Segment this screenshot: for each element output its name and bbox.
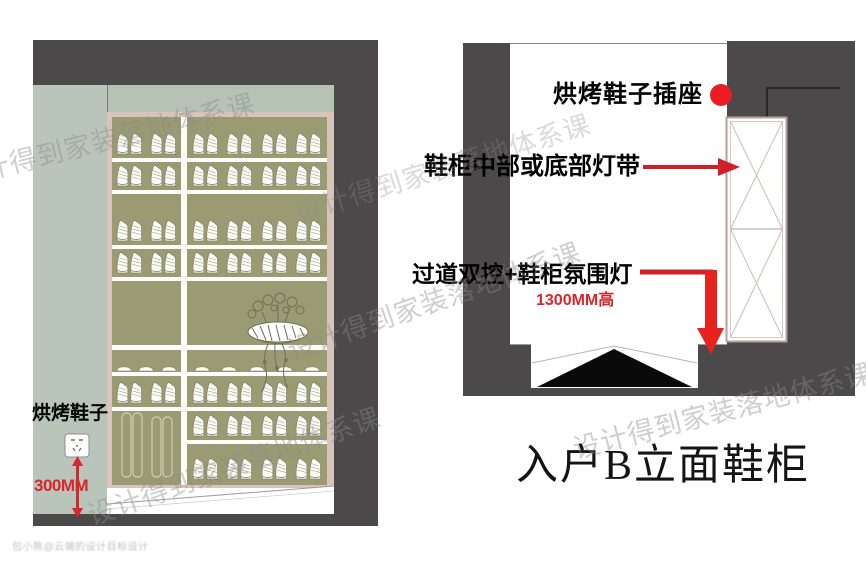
boots-icon	[294, 411, 323, 440]
boots-icon	[149, 248, 178, 277]
socket-annotation: 烘烤鞋子插座	[553, 82, 703, 108]
boots-icon	[294, 248, 323, 277]
boots-row	[113, 129, 180, 158]
plan-cabinet-xhatch	[725, 116, 788, 343]
boots-icon	[115, 248, 144, 277]
slippers-icon	[138, 365, 154, 372]
slippers-icon	[221, 365, 237, 372]
floor-wedge	[107, 482, 334, 518]
boots-row	[113, 161, 180, 190]
slippers-icon	[116, 365, 132, 372]
boots-icon	[191, 378, 220, 407]
switch-annotation: 过道双控+鞋柜氛围灯	[412, 262, 632, 287]
boots-icon	[191, 161, 220, 190]
boots-icon	[149, 161, 178, 190]
plan-title: 入户B立面鞋柜	[516, 431, 810, 492]
boots-icon	[260, 411, 289, 440]
tallboots-row	[113, 411, 180, 481]
socket-dot-icon	[710, 84, 732, 106]
boots-row	[188, 129, 326, 158]
dimension-1300mm: 1300MM高	[536, 286, 614, 310]
slippers-icon	[194, 365, 210, 372]
plan-bottom-strip	[463, 388, 855, 396]
boots-icon	[149, 378, 178, 407]
cabinet-shelf	[187, 440, 327, 444]
boots-icon	[149, 129, 178, 158]
cabinet-shelf	[112, 277, 327, 281]
boots-icon	[191, 411, 220, 440]
boots-icon	[225, 411, 254, 440]
boots-icon	[191, 248, 220, 277]
boots-icon	[191, 216, 220, 245]
boots-icon	[260, 161, 289, 190]
boots-icon	[149, 216, 178, 245]
boots-icon	[191, 129, 220, 158]
boots-icon	[225, 216, 254, 245]
boots-icon	[260, 248, 289, 277]
drying-shoes-label: 烘烤鞋子	[32, 404, 108, 425]
boots-icon	[294, 161, 323, 190]
boots-row	[113, 378, 180, 407]
switch-arrow	[636, 262, 731, 357]
slippers-row	[113, 365, 180, 372]
boots-icon	[294, 454, 323, 483]
boots-icon	[115, 378, 144, 407]
boots-icon	[260, 216, 289, 245]
boots-icon	[225, 161, 254, 190]
boots-icon	[294, 129, 323, 158]
cabinet-shelf	[112, 190, 327, 194]
boots-row	[188, 161, 326, 190]
boots-row	[113, 216, 180, 245]
cabinet-divider	[181, 117, 187, 485]
tallboots-icon	[116, 411, 178, 481]
led-arrow	[643, 155, 743, 179]
boots-row	[113, 248, 180, 277]
boots-icon	[225, 248, 254, 277]
cabinet-top-filler	[107, 85, 334, 114]
boots-row	[188, 411, 326, 440]
slippers-icon	[161, 365, 177, 372]
boots-icon	[115, 129, 144, 158]
left-panel-top-wall	[33, 40, 377, 87]
boots-row	[188, 454, 326, 483]
corner-watermark: 包小熊@云端的设计目标设计	[12, 538, 149, 553]
plan-left-wall	[463, 43, 510, 344]
led-strip-annotation: 鞋柜中部或底部灯带	[424, 154, 640, 180]
boots-icon	[191, 454, 220, 483]
boots-icon	[260, 454, 289, 483]
plan-bottom-left-wall	[463, 344, 531, 388]
boots-icon	[294, 216, 323, 245]
cabinet-interior	[112, 117, 327, 485]
dimension-300mm: 300MM	[34, 476, 88, 496]
left-panel-right-wall	[333, 40, 378, 526]
boots-row	[188, 216, 326, 245]
boots-icon	[225, 454, 254, 483]
boots-icon	[115, 216, 144, 245]
boots-icon	[260, 129, 289, 158]
planter-decoration-icon	[238, 292, 318, 397]
boots-icon	[115, 161, 144, 190]
wall-socket-icon	[64, 433, 90, 458]
boots-icon	[225, 129, 254, 158]
boots-row	[188, 248, 326, 277]
shoe-cabinet-design-diagram: 烘烤鞋子 300MM 烘烤鞋子插座	[0, 0, 866, 569]
